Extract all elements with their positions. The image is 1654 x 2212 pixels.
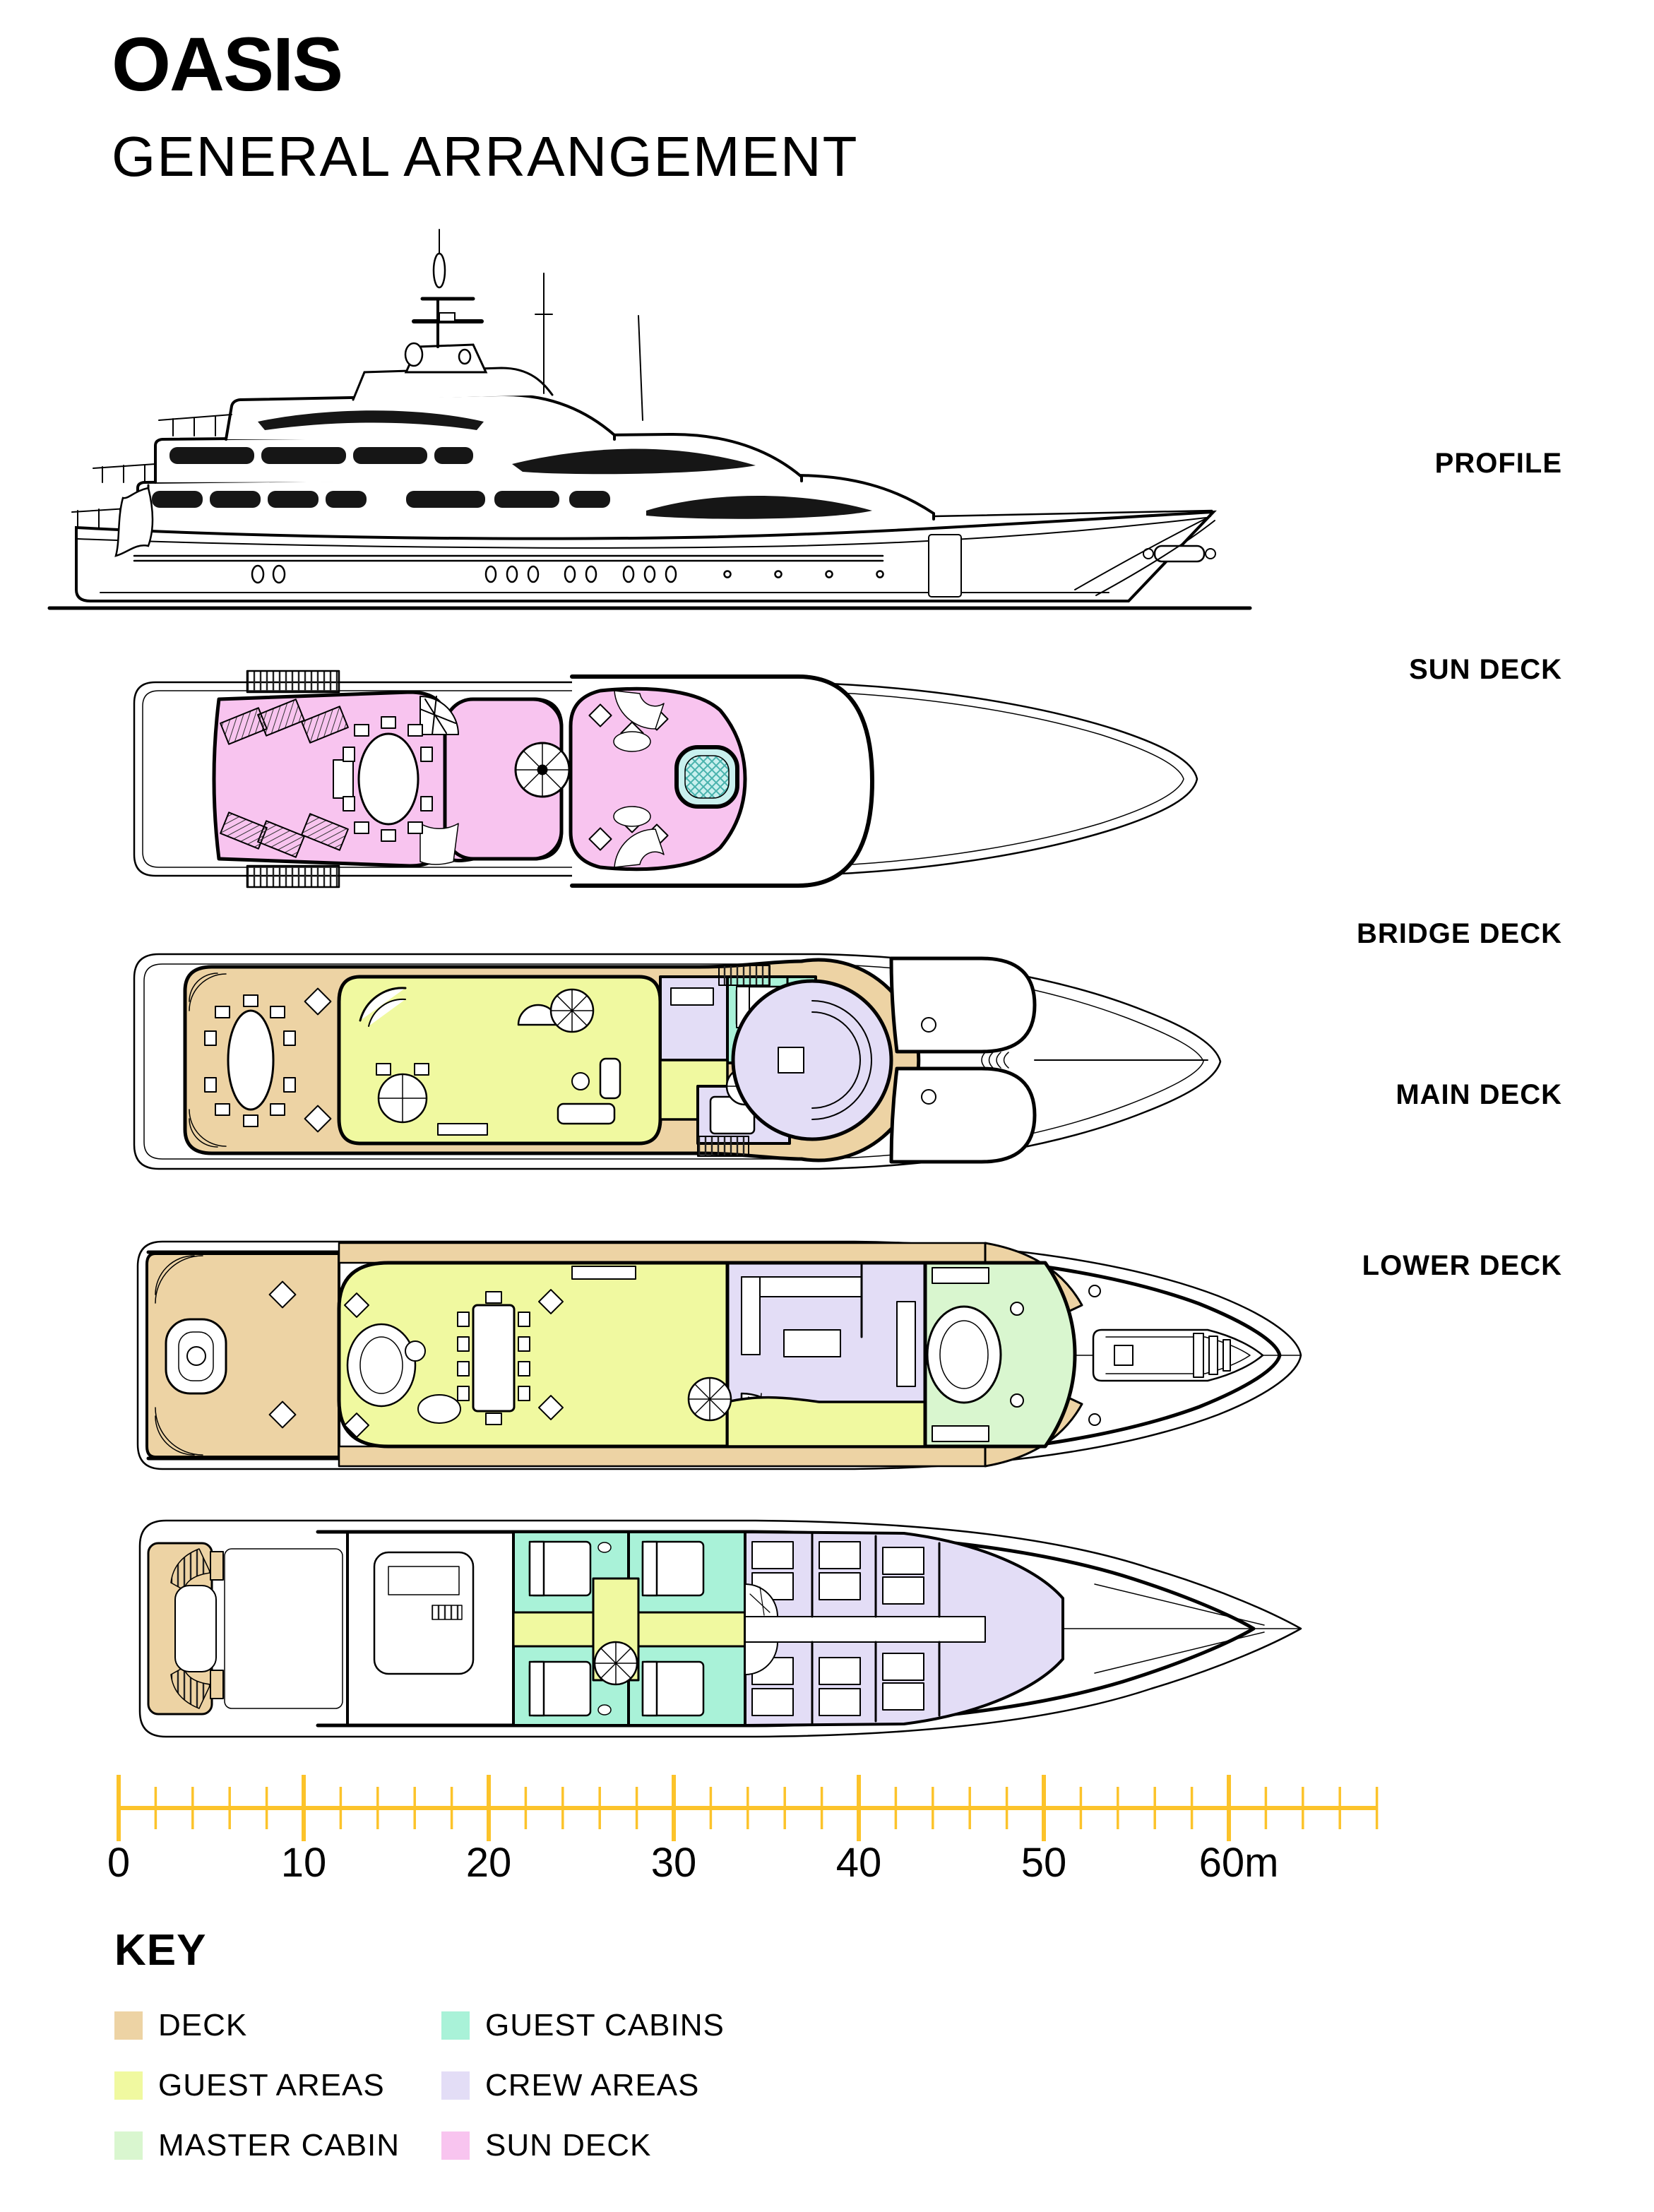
legend-label: MASTER CABIN [158, 2128, 400, 2163]
label-sun-deck: SUN DECK [1409, 654, 1562, 686]
scale-bar-numbers: 0 10 20 30 40 50 60m [107, 1840, 1279, 1886]
profile-drawing [49, 208, 1250, 622]
bridge-deck-plan [106, 934, 1236, 1189]
key-heading: KEY [114, 1925, 206, 1975]
label-main-deck: MAIN DECK [1396, 1079, 1562, 1111]
legend-item-guest-cabins: GUEST CABINS [441, 2011, 725, 2040]
sun-deck-color-swatch [441, 2131, 470, 2160]
mooring-hatch [247, 866, 339, 887]
legend-label: CREW AREAS [485, 2068, 699, 2103]
foredeck-house-top [891, 958, 1035, 1052]
foredeck-house-bottom [891, 1069, 1035, 1162]
wheelhouse [733, 981, 891, 1139]
sun-deck-plan [106, 655, 1208, 903]
side-deck [339, 1446, 985, 1466]
skylight-hatch [698, 1136, 749, 1156]
swim-platform [148, 1543, 216, 1714]
legend-label: SUN DECK [485, 2128, 651, 2163]
legend-item-sun-deck: SUN DECK [441, 2131, 725, 2160]
spiral-staircase [516, 743, 569, 797]
legend-item-deck: DECK [114, 2011, 441, 2040]
label-lower-deck: LOWER DECK [1362, 1250, 1562, 1282]
main-deck-plan [106, 1224, 1307, 1485]
legend-label: DECK [158, 2008, 247, 2043]
legend-item-crew-areas: CREW AREAS [441, 2071, 725, 2100]
crew-areas-color-swatch [441, 2071, 470, 2100]
spiral-staircase [689, 1378, 731, 1420]
mooring-hatch [247, 671, 339, 692]
label-profile: PROFILE [1435, 448, 1562, 480]
guest-areas-color-swatch [114, 2071, 143, 2100]
page-subtitle: GENERAL ARRANGEMENT [112, 124, 858, 189]
spiral-staircase [595, 1642, 637, 1684]
radar-mast [405, 230, 486, 372]
svg-text:60m: 60m [1199, 1840, 1279, 1886]
spiral-staircase [551, 989, 593, 1032]
lower-deck-plan [106, 1499, 1307, 1754]
legend-label: GUEST AREAS [158, 2068, 385, 2103]
svg-text:0: 0 [107, 1840, 130, 1886]
svg-text:50: 50 [1021, 1840, 1067, 1886]
deck-color-swatch [114, 2011, 143, 2040]
antenna-dome [434, 254, 445, 287]
guest-cabins-color-swatch [441, 2011, 470, 2040]
corridor [727, 1398, 925, 1446]
jacuzzi-pool [677, 747, 737, 807]
svg-text:10: 10 [281, 1840, 327, 1886]
key-legend: DECK GUEST AREAS MASTER CABIN GUEST CABI… [114, 2011, 725, 2160]
legend-item-master-cabin: MASTER CABIN [114, 2131, 441, 2160]
svg-text:20: 20 [466, 1840, 512, 1886]
label-bridge-deck: BRIDGE DECK [1357, 918, 1562, 950]
page-title: OASIS [112, 24, 342, 104]
skylight-hatch [719, 965, 770, 985]
master-cabin-color-swatch [114, 2131, 143, 2160]
scale-bar: 0 10 20 30 40 50 60m [99, 1769, 1427, 1889]
legend-item-guest-areas: GUEST AREAS [114, 2071, 441, 2100]
side-deck [339, 1243, 985, 1263]
stern-flag [116, 485, 153, 556]
legend-label: GUEST CABINS [485, 2008, 725, 2043]
svg-text:40: 40 [836, 1840, 882, 1886]
crew-corridor [745, 1617, 985, 1642]
svg-text:30: 30 [651, 1840, 697, 1886]
